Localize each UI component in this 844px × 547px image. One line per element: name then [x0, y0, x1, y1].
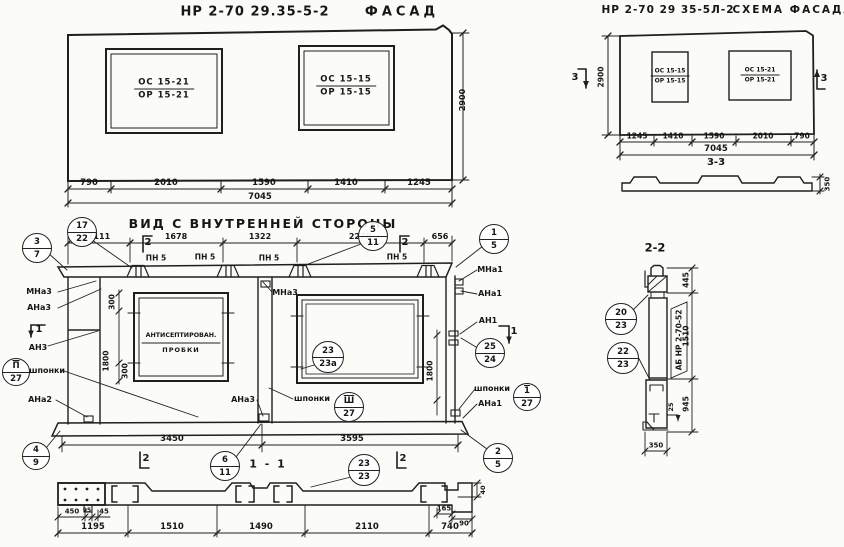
- callout-top: 17: [68, 221, 96, 233]
- s11-dim: 2110: [355, 523, 379, 532]
- inner-top-dim: 656: [432, 233, 449, 241]
- s11-dim: 1510: [160, 523, 184, 532]
- facade-window-right-mark: ОС 15-15 ОР 15-15: [316, 75, 376, 98]
- section-3-3-title: 3-3: [707, 158, 725, 168]
- callout-6-11: 6 11: [210, 451, 240, 481]
- callout-5-11: 5 11: [358, 221, 388, 251]
- callout-22-23: 22 23: [607, 342, 639, 374]
- facade-total-dim: 7045: [248, 193, 272, 202]
- s11-dim: 1490: [249, 523, 273, 532]
- callout-bottom: 7: [23, 249, 51, 260]
- callout-top: 1: [480, 228, 508, 240]
- facade-title-code: НР 2-70 29.35-5-2: [181, 6, 330, 19]
- section-2-2-title: 2-2: [645, 242, 666, 254]
- anchor-label-ana3: АНа3: [27, 304, 51, 312]
- anchor-label-mna3-center: МНа3: [272, 289, 298, 297]
- callout-top: 23: [349, 459, 379, 471]
- schema-title-name: СХЕМА ФАСАДА: [732, 5, 844, 16]
- s11-sub-dim: 450: [65, 509, 80, 516]
- facade-dim: 790: [80, 179, 98, 188]
- anchor-label-an3: АН3: [29, 344, 47, 352]
- callout-top: 2: [484, 447, 512, 459]
- callout-1-5: 1 5: [479, 224, 509, 254]
- schema-window-left-mark: ОС 15-15 ОР 15-15: [651, 68, 690, 85]
- schema-dim: 2010: [753, 132, 774, 140]
- inner-top-dim: 1322: [249, 233, 271, 241]
- section-2-flag-label: 2: [145, 238, 152, 248]
- callout-top: 25: [476, 342, 504, 354]
- callout-17-22: 17 22: [67, 217, 97, 247]
- drawing-linework: [0, 0, 844, 547]
- callout-bottom: 23: [606, 320, 636, 331]
- inner-view-title: ВИД С ВНУТРЕННЕЙ СТОРОНЫ: [129, 218, 398, 231]
- section-1-flag-label: 1: [36, 325, 43, 335]
- anchor-label-an1: АН1: [479, 317, 497, 325]
- callout-top: Ш: [335, 396, 363, 408]
- callout-23-23: 23 23: [348, 454, 380, 486]
- window-mark-bottom: ОР 15-15: [655, 77, 686, 85]
- window-mark-top: ОС 15-21: [741, 67, 780, 76]
- s11-sub-dim: 45: [99, 509, 109, 516]
- callout-II-27: П 27: [2, 358, 30, 386]
- window-note-line2: ПРОБКИ: [162, 347, 199, 354]
- callout-bottom: 27: [514, 398, 540, 409]
- facade-dim: 2010: [154, 179, 178, 188]
- callout-20-23: 20 23: [605, 303, 637, 335]
- s11-sub-dim: 95: [83, 508, 91, 514]
- s11-sub-dim: 90: [459, 521, 469, 528]
- pn-connector-label: ПН 5: [195, 253, 215, 261]
- facade-height-dim: 2900: [459, 89, 467, 111]
- section-1-1-title: 1 - 1: [249, 459, 287, 470]
- callout-25-24: 25 24: [475, 338, 505, 368]
- callout-bottom: 5: [480, 240, 508, 251]
- callout-bottom: 24: [476, 354, 504, 365]
- facade-dim: 1590: [252, 179, 276, 188]
- window-mark-bottom: ОР 15-21: [745, 76, 776, 84]
- section-2-flag-label: 2: [400, 454, 407, 464]
- anchor-label-ana2: АНа2: [28, 396, 52, 404]
- schema-window-right-mark: ОС 15-21 ОР 15-21: [741, 67, 780, 84]
- callout-top: 22: [608, 347, 638, 359]
- anchor-label-ana3-center: АНа3: [231, 396, 255, 404]
- s22-dim-25: 25: [668, 402, 675, 411]
- facade-dim: 1245: [407, 179, 431, 188]
- s11-dim: 740: [441, 523, 459, 532]
- anchor-label-mna1: МНа1: [477, 266, 503, 274]
- callout-2-5: 2 5: [483, 443, 513, 473]
- s11-dim: 1195: [81, 523, 105, 532]
- s11-sub-dim: 165: [437, 506, 452, 513]
- callout-4-9: 4 9: [22, 442, 50, 470]
- section-2-flag-label: 2: [402, 238, 409, 248]
- schema-dim: 1245: [627, 132, 648, 140]
- callout-top: 3: [23, 237, 51, 249]
- callout-I-27: 1 27: [513, 383, 541, 411]
- vertical-dim-300-bottom: 300: [121, 363, 129, 379]
- window-mark-bottom: ОР 15-21: [138, 90, 190, 101]
- s22-dim-445: 445: [682, 272, 690, 288]
- callout-23-23a: 23 23а: [312, 341, 344, 373]
- section-2-flag-label: 2: [143, 454, 150, 464]
- window-note-line1: АНТИСЕПТИРОВАН.: [146, 333, 217, 339]
- section-3-3-height-dim: 350: [825, 177, 832, 192]
- window-mark-top: ОС 15-15: [651, 68, 690, 77]
- callout-top: 6: [211, 455, 239, 467]
- callout-top: 4: [23, 445, 49, 457]
- callout-bottom: 22: [68, 233, 96, 244]
- callout-bottom: 9: [23, 457, 49, 468]
- pn-connector-label: ПН 5: [387, 253, 407, 261]
- callout-3-7: 3 7: [22, 233, 52, 263]
- callout-bottom: 23а: [313, 358, 343, 369]
- pn-connector-label: ПН 5: [259, 254, 279, 262]
- schema-dim: 1590: [704, 132, 725, 140]
- vertical-dim-1800-left: 1800: [102, 351, 110, 372]
- schema-section-marker-right: 3: [821, 74, 828, 84]
- callout-top: 1: [514, 386, 540, 398]
- anchor-label-ana1-bottom: АНа1: [478, 400, 502, 408]
- anchor-label-mna3: МНа3: [26, 288, 52, 296]
- schema-title-code: НР 2-70 29 35-5Л-2: [602, 5, 735, 16]
- callout-bottom: 5: [484, 459, 512, 470]
- s22-dim-1510: 1510: [682, 326, 690, 347]
- callout-bottom: 27: [3, 373, 29, 384]
- facade-dim: 1410: [334, 179, 358, 188]
- blueprint-canvas: НР 2-70 29.35-5-2 ФАСАД ОС 15-21 ОР 15-2…: [0, 0, 844, 547]
- window-mark-top: ОС 15-15: [316, 75, 376, 87]
- callout-III-27: Ш 27: [334, 392, 364, 422]
- anchor-label-ana1: АНа1: [478, 290, 502, 298]
- callout-top: 5: [359, 225, 387, 237]
- callout-bottom: 23: [608, 359, 638, 370]
- shponki-label-center: шпонки: [294, 395, 330, 403]
- callout-bottom: 27: [335, 408, 363, 419]
- callout-bottom: 11: [359, 237, 387, 248]
- s11-vertical-dim: 40: [480, 485, 487, 494]
- callout-top: 23: [313, 346, 343, 358]
- s22-dim-945: 945: [682, 396, 690, 412]
- window-mark-bottom: ОР 15-15: [320, 87, 372, 98]
- window-mark-top: ОС 15-21: [134, 78, 194, 90]
- pn-connector-label: ПН 5: [146, 254, 166, 262]
- section-1-flag-label: 1: [511, 327, 518, 337]
- vertical-dim-300-top: 300: [108, 294, 116, 310]
- shponki-label-left: шпонки: [29, 367, 65, 375]
- s22-stamp-text: АБ НР 2-70-52: [675, 310, 683, 371]
- inner-bottom-dim: 3595: [340, 435, 364, 444]
- schema-section-marker-left: 3: [572, 73, 579, 83]
- schema-height-dim: 2900: [597, 67, 605, 88]
- inner-bottom-dim: 3450: [160, 435, 184, 444]
- s22-dim-350: 350: [649, 443, 664, 450]
- callout-top: П: [3, 361, 29, 373]
- shponki-label-right: шпонки: [474, 385, 510, 393]
- facade-window-left-mark: ОС 15-21 ОР 15-21: [134, 78, 194, 101]
- inner-top-dim: 1678: [165, 233, 187, 241]
- callout-bottom: 23: [349, 471, 379, 482]
- schema-dim: 790: [794, 132, 810, 140]
- schema-dim: 1410: [663, 132, 684, 140]
- facade-title-name: ФАСАД: [365, 6, 439, 19]
- vertical-dim-1800-right: 1800: [426, 361, 434, 382]
- schema-total-dim: 7045: [704, 145, 728, 154]
- callout-bottom: 11: [211, 467, 239, 478]
- callout-top: 20: [606, 308, 636, 320]
